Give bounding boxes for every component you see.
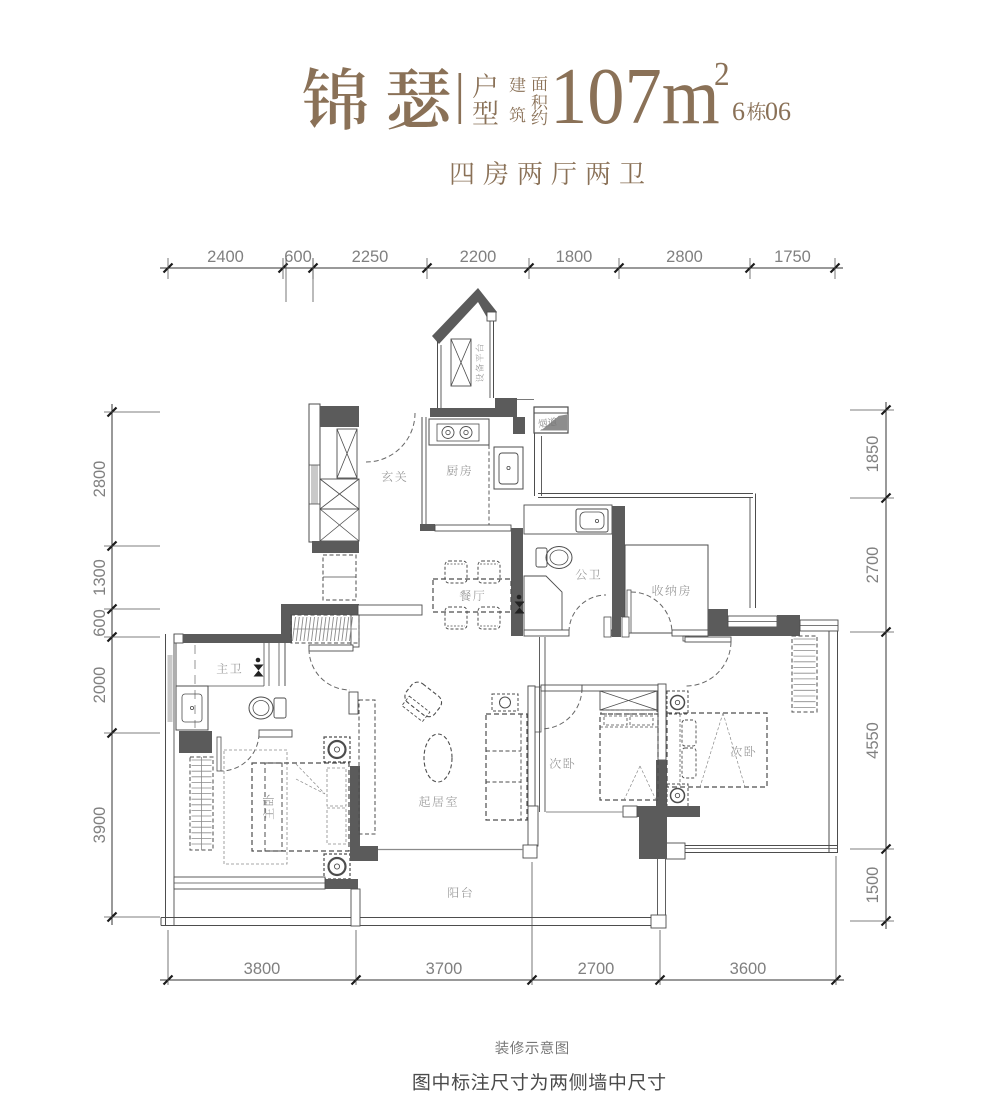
- svg-text:6: 6: [732, 97, 745, 126]
- svg-text:2800: 2800: [666, 248, 703, 266]
- svg-text:1850: 1850: [864, 436, 882, 473]
- svg-text:1750: 1750: [774, 248, 811, 266]
- svg-text:107m: 107m: [550, 51, 720, 141]
- svg-text:3900: 3900: [91, 807, 109, 844]
- svg-text:2400: 2400: [207, 248, 244, 266]
- svg-text:3700: 3700: [426, 960, 463, 978]
- svg-text:2800: 2800: [91, 461, 109, 498]
- svg-text:2700: 2700: [578, 960, 615, 978]
- svg-text:1500: 1500: [864, 867, 882, 904]
- svg-text:2: 2: [714, 56, 730, 93]
- svg-text:3800: 3800: [244, 960, 281, 978]
- svg-text:1300: 1300: [91, 559, 109, 596]
- svg-text:06: 06: [765, 97, 791, 126]
- svg-text:3600: 3600: [730, 960, 767, 978]
- svg-text:600: 600: [91, 609, 109, 637]
- svg-text:2000: 2000: [91, 667, 109, 704]
- svg-text:4550: 4550: [864, 722, 882, 759]
- svg-text:600: 600: [284, 248, 312, 266]
- svg-text:2700: 2700: [864, 547, 882, 584]
- svg-text:2200: 2200: [460, 248, 497, 266]
- svg-text:1800: 1800: [556, 248, 593, 266]
- svg-text:2250: 2250: [352, 248, 389, 266]
